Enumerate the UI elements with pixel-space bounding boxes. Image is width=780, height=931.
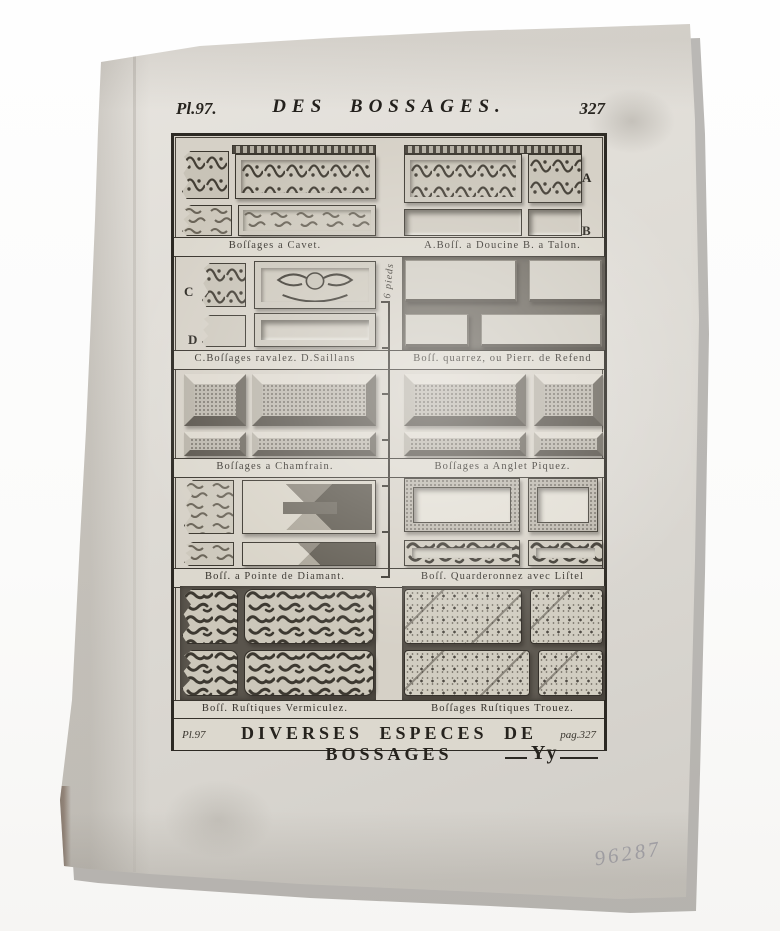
- caption-band-row1: Boſſages a Cavet. A.Boſſ. a Doucine B. a…: [174, 237, 604, 257]
- page-title: DES BOSSAGES.: [171, 96, 607, 118]
- letter-c-label: C: [184, 284, 193, 300]
- scale-tick: [382, 531, 390, 533]
- caption-chamfrain: Boſſages a Chamfrain.: [174, 461, 376, 472]
- chamfered-block: [252, 432, 376, 456]
- carved-frieze-panel: [235, 154, 376, 199]
- figure-pointe-de-diamant: [180, 476, 376, 568]
- chamfered-block: [184, 374, 246, 426]
- diamond-point-block: [242, 480, 376, 534]
- letter-a-label: A: [582, 170, 591, 186]
- scale-tick: [381, 576, 390, 578]
- caption-pointe-de-diamant: Boſſ. a Pointe de Diamant.: [174, 571, 376, 582]
- mottled-texture: [185, 481, 233, 533]
- rusticated-block: [182, 205, 232, 236]
- diamond-plateau: [283, 502, 337, 514]
- figure-bossages-a-cavet: [180, 143, 376, 237]
- mottled-texture: [243, 210, 371, 231]
- vermiculated-stone: [244, 589, 374, 644]
- quarter-round-block: [528, 478, 598, 532]
- plain-band-block: [528, 209, 582, 236]
- pocked-stone: [530, 589, 603, 644]
- page-number: 327: [563, 99, 605, 119]
- vermiculated-texture: [245, 651, 373, 695]
- ornament-texture: [183, 152, 228, 198]
- vermiculated-texture: [183, 651, 237, 695]
- caption-doucine-talon: A.Boſſ. a Doucine B. a Talon.: [400, 240, 605, 251]
- ornament-texture: [203, 264, 245, 306]
- carved-block: [202, 263, 246, 307]
- acanthus-scroll-texture: [410, 160, 516, 197]
- vermiculated-stone: [244, 650, 374, 696]
- caption-anglet-piquez: Boſſages a Anglet Piquez.: [400, 461, 605, 472]
- caption-bossages-a-cavet: Boſſages a Cavet.: [174, 240, 376, 251]
- figure-bossages-a-chamfrain: [180, 370, 376, 458]
- vermiculated-stone: [182, 589, 238, 644]
- plain-band-block: [404, 209, 522, 236]
- vermiculated-texture: [245, 590, 373, 643]
- pocked-stone: [538, 650, 603, 696]
- cherub-frieze-panel: [254, 261, 376, 309]
- vermiculated-border-block: [404, 540, 520, 566]
- pocked-stone: [404, 650, 530, 696]
- figure-rustiques-vermiculez: [180, 586, 376, 700]
- leaf-crest-strip: [232, 145, 376, 154]
- caption-ravalez-saillans: C.Boſſages ravalez. D.Saillans: [174, 353, 376, 364]
- vermiculated-texture: [183, 590, 237, 643]
- scale-label: 6 pieds: [382, 263, 396, 299]
- carved-block: [182, 151, 229, 199]
- page-edge-dark-strip: [58, 786, 71, 870]
- paper-sheet: Pl.97. DES BOSSAGES. 327: [0, 0, 780, 931]
- binding-crease: [133, 52, 136, 872]
- scale-tick: [382, 393, 390, 395]
- recessed-panel-block: [254, 313, 376, 347]
- plain-block: [202, 315, 246, 347]
- footer-page-ref: pag.327: [560, 729, 596, 741]
- caption-quarderonnez-listel: Boſſ. Quarderonnez avec Liſtel: [400, 571, 605, 582]
- figure-pierre-de-refend: [402, 257, 605, 350]
- vermiculated-stone: [182, 650, 238, 696]
- chamfered-block: [252, 374, 376, 426]
- carved-frieze-panel: [404, 154, 522, 203]
- photo-of-book-plate: Pl.97. DES BOSSAGES. 327: [0, 0, 780, 931]
- carved-block: [528, 154, 582, 203]
- signature-dash-left: [505, 757, 527, 759]
- figure-quarderonnez-listel: [402, 476, 605, 568]
- scale-tick: [381, 301, 390, 303]
- diamond-point-band: [242, 542, 376, 566]
- scale-tick: [382, 439, 390, 441]
- figure-anglet-piquez: [402, 370, 605, 458]
- squared-stone: [529, 260, 602, 302]
- chamfered-block: [184, 432, 246, 456]
- rusticated-band: [238, 205, 376, 236]
- picked-chamfered-block: [404, 374, 526, 426]
- pocked-stone: [404, 589, 522, 644]
- scale-tick: [382, 347, 390, 349]
- picked-chamfered-block: [534, 432, 603, 456]
- caption-rustiques-trouez: Boſſages Ruſtiques Trouez.: [400, 703, 605, 714]
- mottled-texture: [185, 543, 233, 565]
- leaf-crest-strip: [404, 145, 582, 154]
- picked-chamfered-block: [534, 374, 603, 426]
- vermiculated-border-block: [528, 540, 603, 566]
- quarter-round-block: [404, 478, 520, 532]
- caption-rustiques-vermiculez: Boſſ. Ruſtiques Vermiculez.: [174, 703, 376, 714]
- squared-stone: [405, 260, 517, 302]
- figure-bossages-ravalez-saillans: [180, 257, 376, 350]
- acanthus-scroll-texture: [241, 160, 370, 193]
- letter-d-label: D: [188, 332, 197, 348]
- mottled-texture: [183, 206, 231, 235]
- figure-boss-doucine-talon: [402, 143, 605, 237]
- ornament-texture: [529, 155, 581, 202]
- broken-rustic-block: [184, 542, 234, 566]
- squared-stone: [481, 314, 602, 347]
- signature-dash-right: [560, 757, 598, 759]
- plate-frame: A B Boſſages a Cavet. A.Boſſ. a Doucine …: [171, 133, 607, 751]
- squared-stone: [405, 314, 469, 347]
- broken-rustic-block: [184, 480, 234, 534]
- caption-band-row5: Boſſ. Ruſtiques Vermiculez. Boſſages Ruſ…: [174, 700, 604, 720]
- caption-pierre-de-refend: Boſſ. quarrez, ou Pierr. de Refend: [400, 353, 605, 364]
- figure-rustiques-trouez: [402, 586, 605, 700]
- cherub-ornament: [261, 268, 369, 302]
- printer-signature: Yy: [531, 742, 557, 765]
- picked-chamfered-block: [404, 432, 526, 456]
- scale-tick: [382, 485, 390, 487]
